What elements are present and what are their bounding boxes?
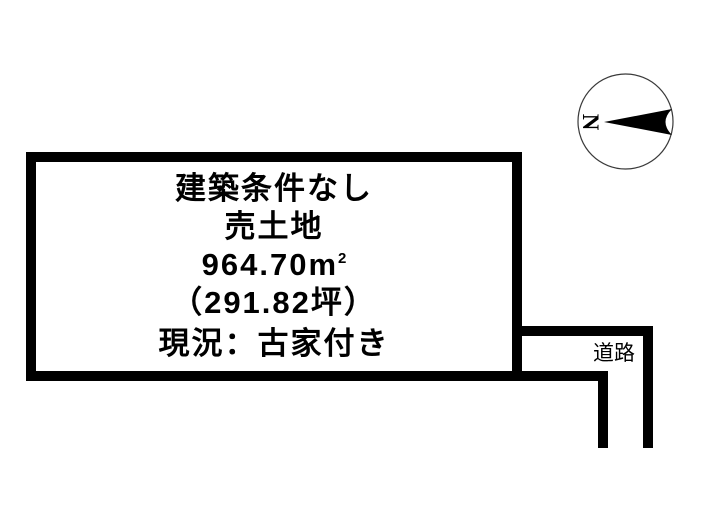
land-plot-diagram: 建築条件なし 売土地 964.70m2 （291.82坪） 現況：古家付き 道路…	[0, 0, 705, 525]
parcel-condition: 現況：古家付き	[36, 325, 512, 363]
road-edge-top	[512, 326, 653, 336]
parcel-area-tsubo: （291.82坪）	[36, 284, 512, 322]
parcel-area-unit: m	[308, 247, 338, 282]
parcel-title: 建築条件なし	[36, 170, 512, 208]
road-edge-bottom	[522, 371, 608, 381]
parcel-area-unit-exponent: 2	[338, 250, 346, 267]
compass-north-letter: N	[578, 114, 603, 131]
north-compass-icon: N	[575, 70, 679, 174]
road-edge-left	[598, 371, 608, 448]
road-edge-right	[643, 326, 653, 448]
road-label: 道路	[588, 341, 640, 366]
parcel-area-sqm: 964.70m2	[36, 246, 512, 284]
parcel-area-value: 964.70	[202, 247, 309, 282]
parcel-text-block: 建築条件なし 売土地 964.70m2 （291.82坪） 現況：古家付き	[36, 170, 512, 363]
parcel-sale-type: 売土地	[36, 208, 512, 246]
